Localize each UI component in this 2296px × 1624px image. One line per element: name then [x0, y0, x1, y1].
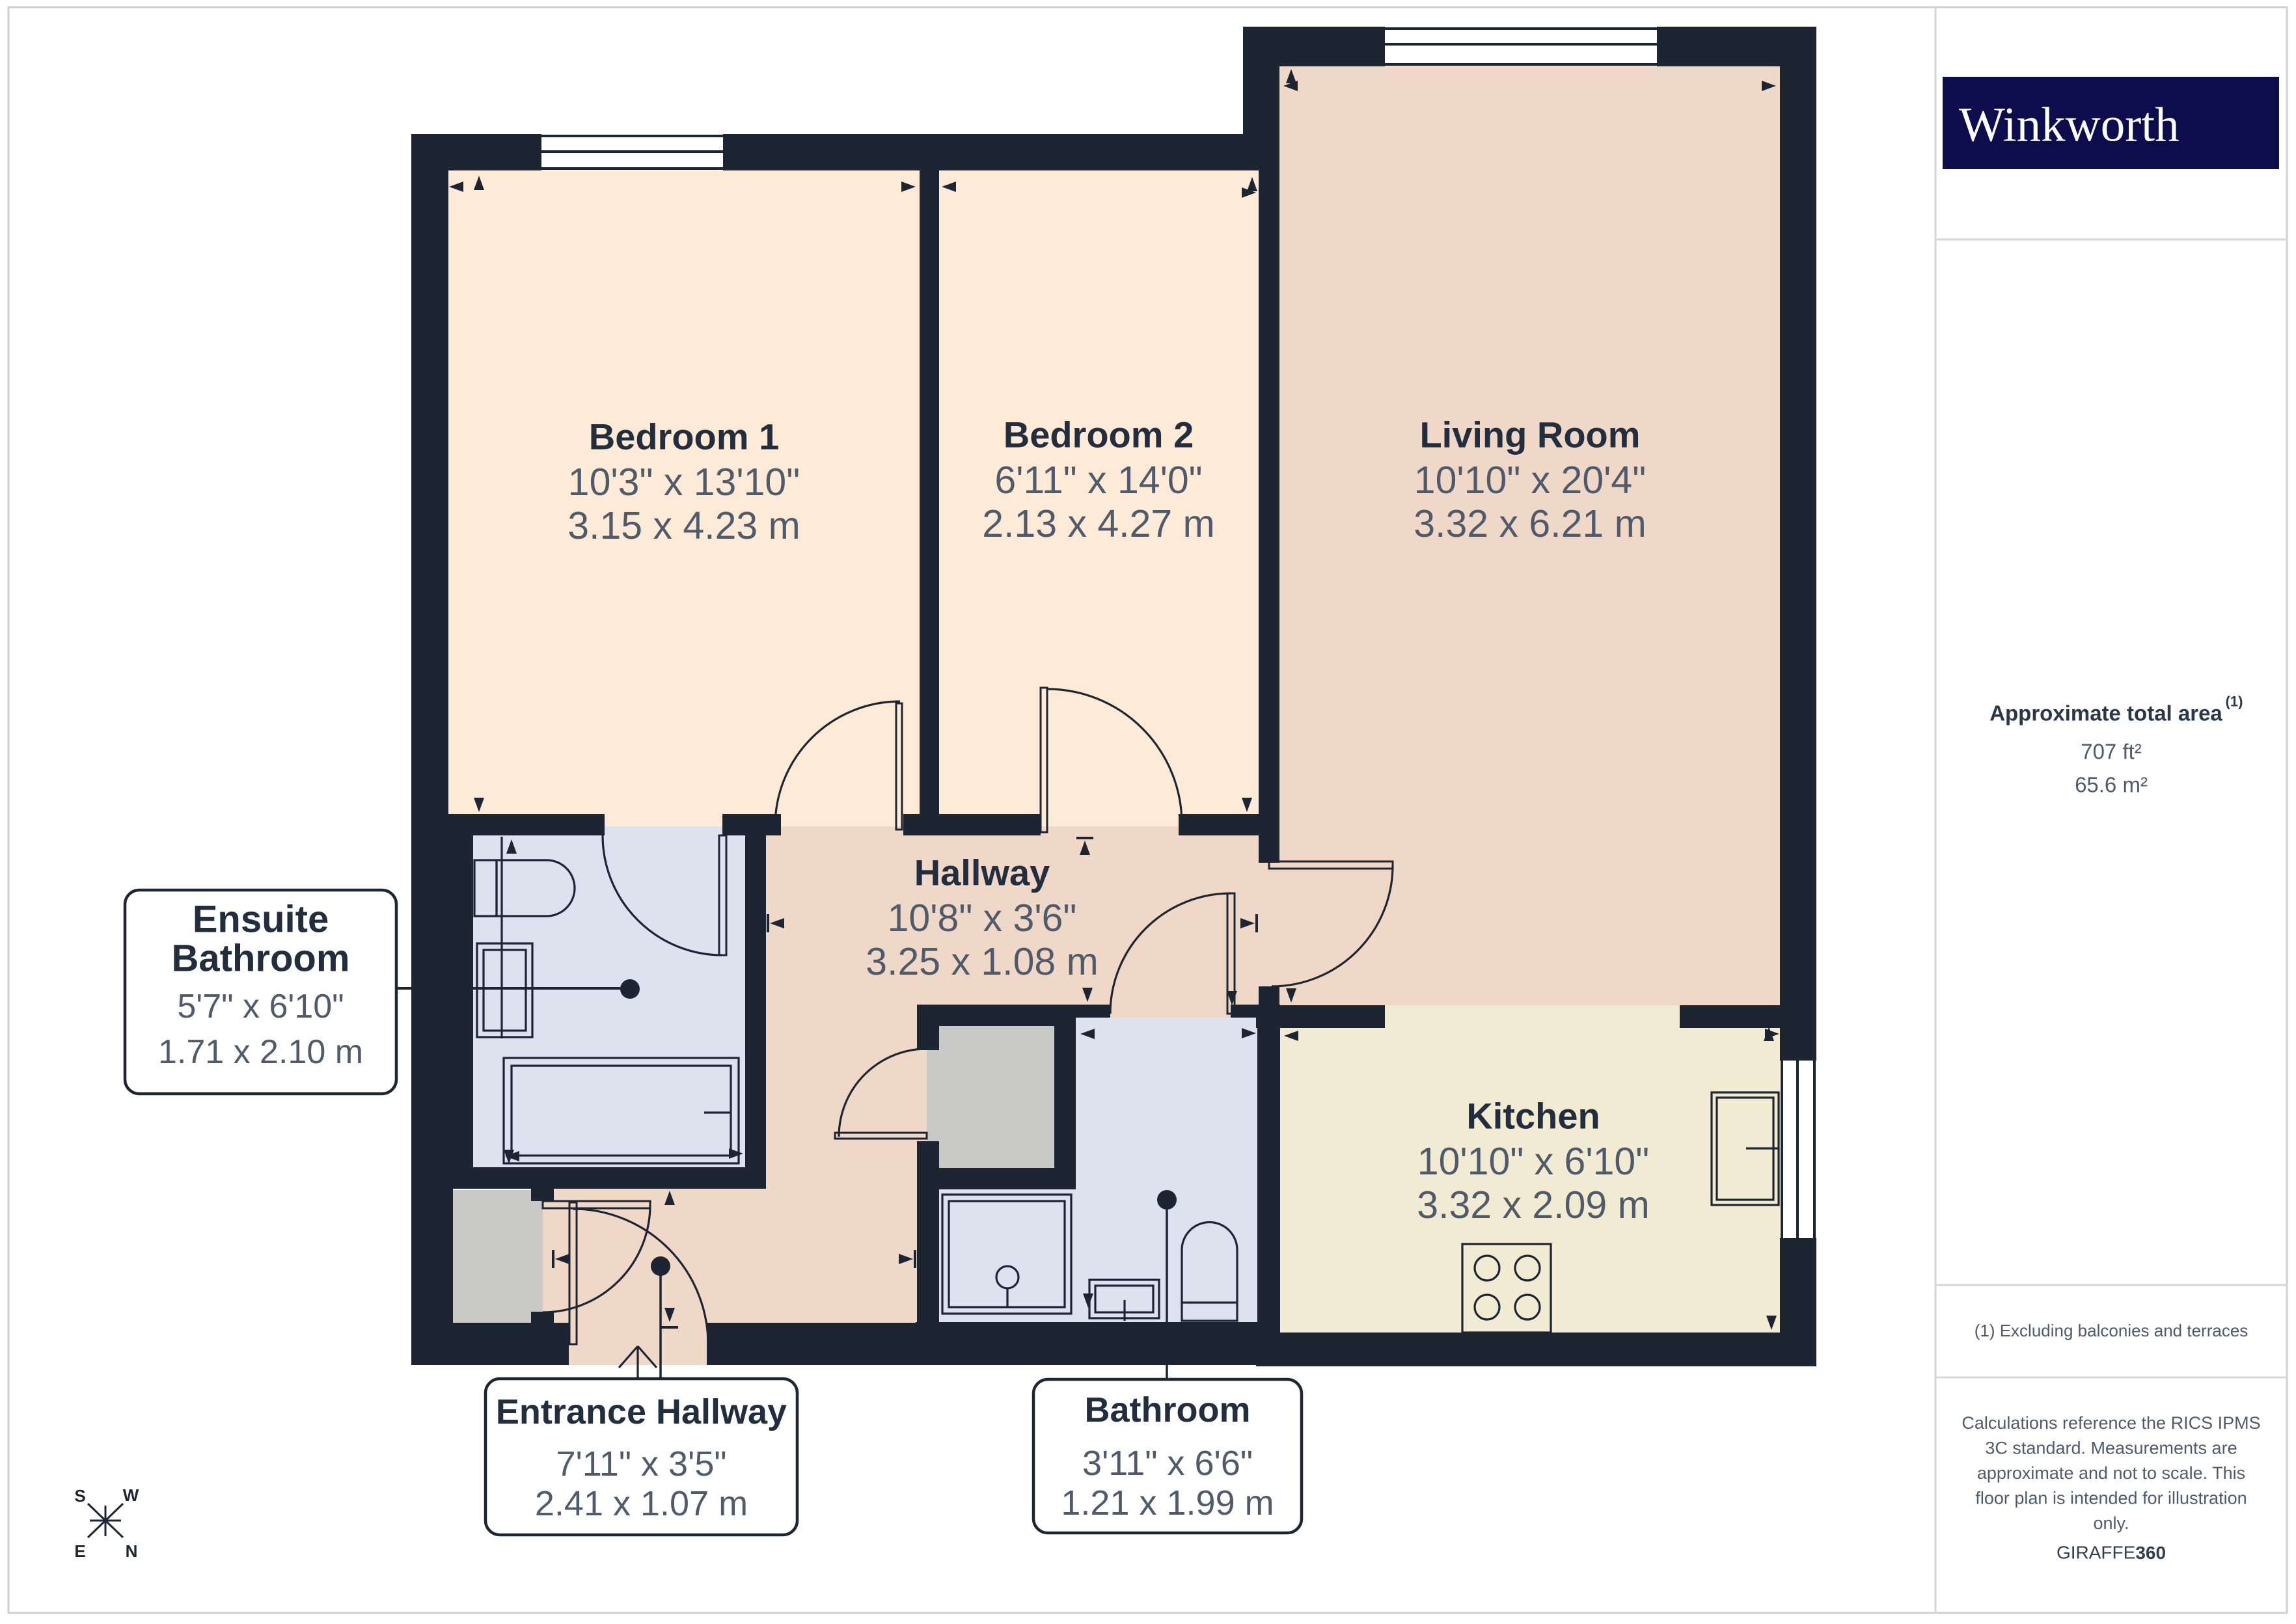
svg-text:5'7" x 6'10": 5'7" x 6'10" — [177, 988, 344, 1025]
svg-text:N: N — [126, 1541, 138, 1561]
svg-text:Bedroom 1: Bedroom 1 — [589, 416, 780, 457]
svg-text:10'10" x 20'4": 10'10" x 20'4" — [1414, 459, 1646, 502]
svg-text:3'11" x 6'6": 3'11" x 6'6" — [1082, 1444, 1253, 1483]
svg-text:(1): (1) — [2226, 694, 2243, 710]
svg-text:10'8" x 3'6": 10'8" x 3'6" — [888, 897, 1077, 940]
svg-text:(1) Excluding balconies and te: (1) Excluding balconies and terraces — [1975, 1321, 2248, 1340]
svg-text:3.25 x 1.08 m: 3.25 x 1.08 m — [866, 940, 1099, 983]
svg-text:7'11" x 3'5": 7'11" x 3'5" — [556, 1444, 726, 1483]
svg-text:Kitchen: Kitchen — [1466, 1096, 1600, 1137]
svg-text:10'3" x 13'10": 10'3" x 13'10" — [568, 461, 800, 504]
svg-text:Living Room: Living Room — [1419, 414, 1640, 455]
svg-text:3.15 x 4.23 m: 3.15 x 4.23 m — [567, 504, 800, 547]
svg-text:6'11" x 14'0": 6'11" x 14'0" — [994, 459, 1202, 502]
svg-text:3C standard. Measurements are: 3C standard. Measurements are — [1985, 1439, 2237, 1458]
svg-text:GIRAFFE360: GIRAFFE360 — [2057, 1543, 2166, 1563]
svg-text:Entrance Hallway: Entrance Hallway — [496, 1392, 787, 1431]
svg-text:Hallway: Hallway — [914, 852, 1050, 893]
svg-text:65.6 m²: 65.6 m² — [2075, 773, 2148, 797]
svg-text:1.21 x 1.99 m: 1.21 x 1.99 m — [1061, 1483, 1274, 1522]
svg-text:E: E — [74, 1541, 85, 1561]
svg-text:Approximate total area: Approximate total area — [1989, 701, 2222, 725]
svg-text:floor plan is intended for ill: floor plan is intended for illustration — [1975, 1489, 2247, 1508]
svg-text:Winkworth: Winkworth — [1959, 98, 2180, 152]
svg-text:approximate and not to scale.: approximate and not to scale. This — [1977, 1463, 2245, 1483]
svg-text:Calculations reference the RIC: Calculations reference the RICS IPMS — [1961, 1413, 2260, 1433]
svg-text:707 ft²: 707 ft² — [2081, 740, 2142, 764]
svg-text:1.71 x 2.10 m: 1.71 x 2.10 m — [158, 1033, 363, 1071]
svg-text:S: S — [74, 1486, 85, 1506]
svg-text:2.13 x 4.27 m: 2.13 x 4.27 m — [982, 502, 1215, 545]
svg-text:Bedroom 2: Bedroom 2 — [1004, 414, 1194, 455]
svg-text:2.41 x 1.07 m: 2.41 x 1.07 m — [535, 1484, 748, 1523]
svg-text:3.32 x 6.21 m: 3.32 x 6.21 m — [1414, 502, 1647, 545]
svg-text:10'10" x 6'10": 10'10" x 6'10" — [1417, 1140, 1649, 1183]
svg-text:3.32 x 2.09 m: 3.32 x 2.09 m — [1417, 1184, 1650, 1226]
svg-text:Ensuite: Ensuite — [193, 899, 329, 941]
svg-text:Bathroom: Bathroom — [172, 938, 350, 980]
svg-text:only.: only. — [2093, 1513, 2129, 1533]
svg-text:Bathroom: Bathroom — [1085, 1390, 1251, 1429]
svg-text:W: W — [123, 1485, 139, 1505]
